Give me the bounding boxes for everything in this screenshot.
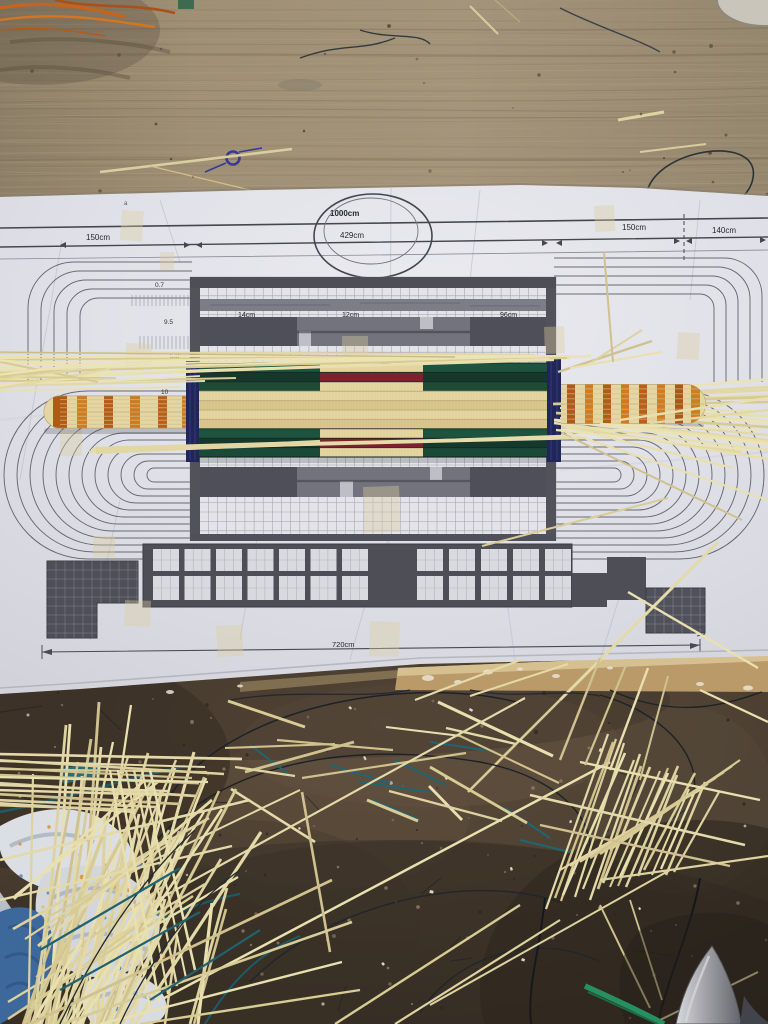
svg-text:10: 10 [161, 389, 169, 396]
svg-text:140cm: 140cm [712, 226, 736, 235]
svg-text:150cm: 150cm [86, 233, 110, 242]
svg-text:150cm: 150cm [622, 223, 646, 232]
svg-text:9.5: 9.5 [164, 319, 173, 326]
svg-text:720cm: 720cm [332, 640, 355, 649]
svg-text:0.7: 0.7 [155, 282, 164, 289]
svg-text:429cm: 429cm [340, 231, 364, 240]
